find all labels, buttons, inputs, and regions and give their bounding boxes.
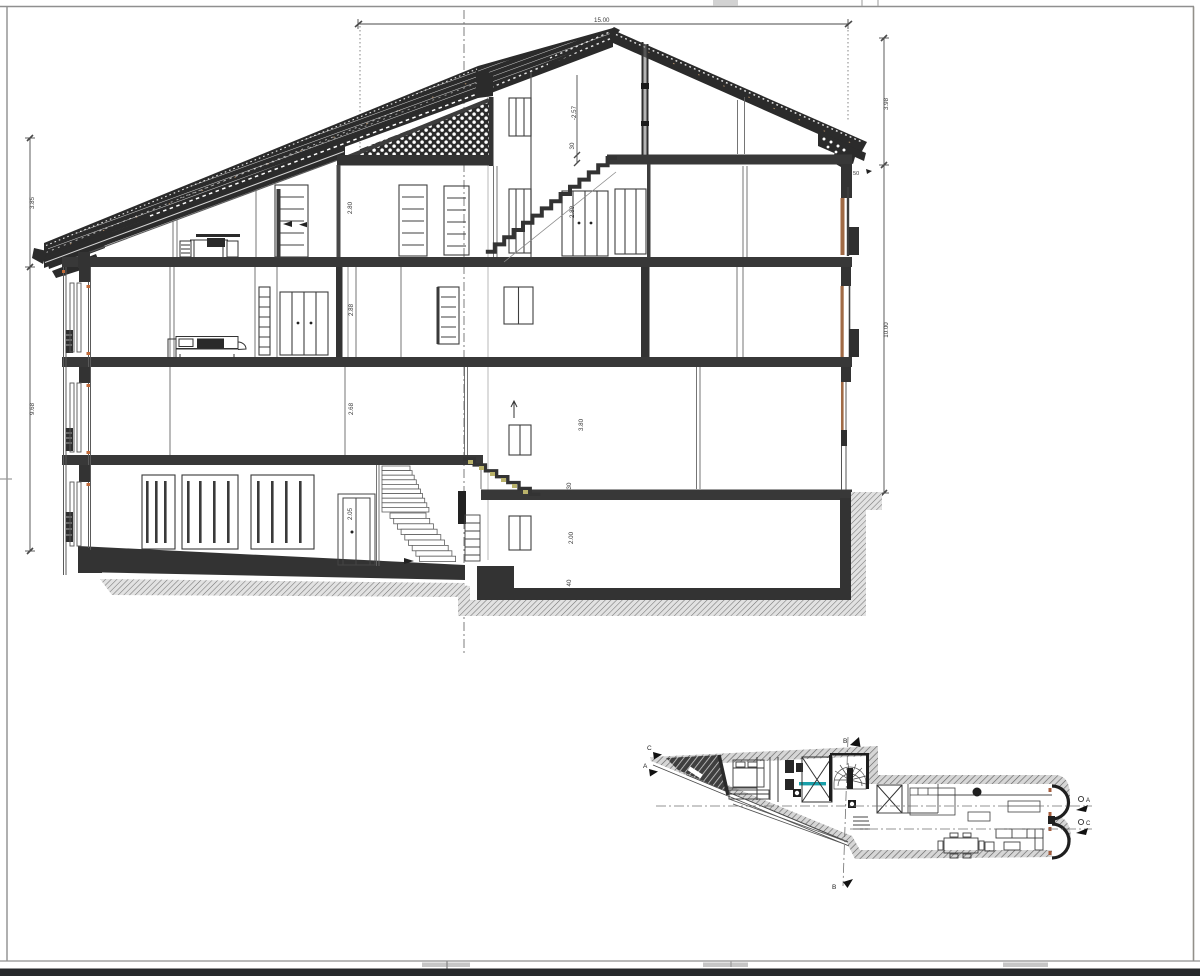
svg-text:2.80: 2.80	[347, 201, 354, 214]
svg-text:C: C	[1086, 821, 1091, 827]
svg-text:3.80: 3.80	[578, 418, 585, 431]
svg-text:-2.57: -2.57	[571, 105, 578, 120]
svg-text:15.00: 15.00	[594, 17, 610, 24]
svg-text:A: A	[1086, 798, 1090, 804]
svg-text:10.00: 10.00	[883, 322, 890, 338]
svg-text:2.68: 2.68	[348, 402, 355, 415]
svg-text:C: C	[647, 745, 652, 752]
svg-text:2.88: 2.88	[348, 303, 355, 316]
svg-text:40: 40	[566, 579, 573, 586]
svg-text:B: B	[843, 738, 847, 745]
svg-text:2.05: 2.05	[347, 507, 354, 520]
svg-text:3.85: 3.85	[29, 196, 36, 209]
svg-text:A: A	[643, 763, 648, 770]
svg-text:30: 30	[569, 142, 576, 149]
svg-text:30: 30	[566, 482, 573, 489]
svg-text:2.00: 2.00	[568, 531, 575, 544]
svg-text:50: 50	[853, 171, 859, 177]
svg-text:9.68: 9.68	[29, 402, 36, 415]
svg-text:3.98: 3.98	[883, 97, 890, 110]
svg-text:B: B	[832, 884, 836, 891]
